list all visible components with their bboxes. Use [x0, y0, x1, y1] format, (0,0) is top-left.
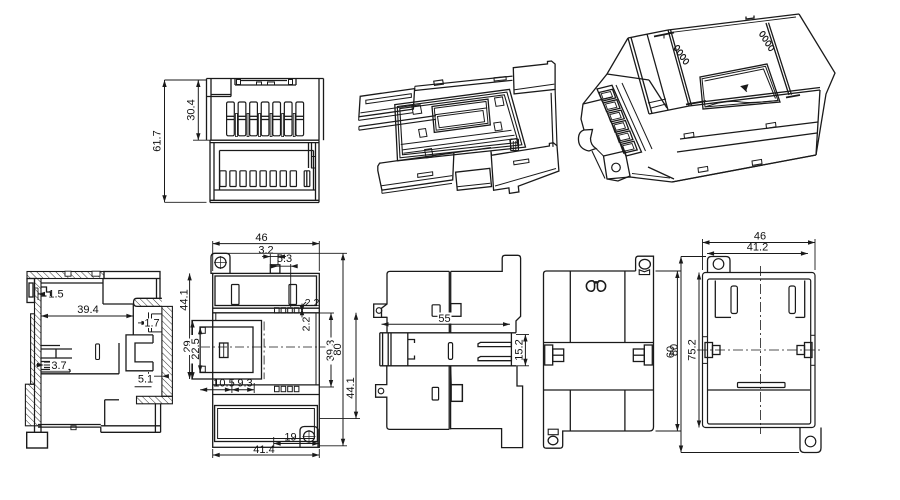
svg-text:1.7: 1.7: [144, 318, 159, 330]
svg-text:61.7: 61.7: [152, 130, 164, 151]
svg-text:3.2: 3.2: [258, 245, 273, 257]
svg-text:3.7: 3.7: [51, 360, 66, 372]
svg-text:2.2: 2.2: [301, 317, 313, 332]
svg-text:41.2: 41.2: [747, 242, 768, 254]
svg-text:15.2: 15.2: [514, 339, 526, 360]
svg-text:2.2: 2.2: [305, 297, 320, 309]
svg-text:80: 80: [332, 343, 344, 355]
svg-text:19: 19: [284, 432, 296, 444]
svg-text:39.4: 39.4: [77, 304, 98, 316]
svg-text:80: 80: [669, 344, 681, 356]
svg-text:5.3: 5.3: [277, 253, 292, 265]
svg-text:75.2: 75.2: [687, 339, 699, 360]
svg-text:1.5: 1.5: [48, 289, 63, 301]
svg-text:55: 55: [438, 313, 450, 325]
svg-text:44.1: 44.1: [178, 289, 190, 310]
svg-text:22.5: 22.5: [190, 338, 202, 359]
svg-text:44.1: 44.1: [345, 377, 357, 398]
svg-text:46: 46: [255, 232, 267, 244]
svg-text:9.3: 9.3: [237, 377, 252, 389]
svg-text:30.4: 30.4: [185, 99, 197, 120]
svg-text:41.4: 41.4: [253, 444, 274, 456]
svg-text:5.1: 5.1: [138, 373, 153, 385]
